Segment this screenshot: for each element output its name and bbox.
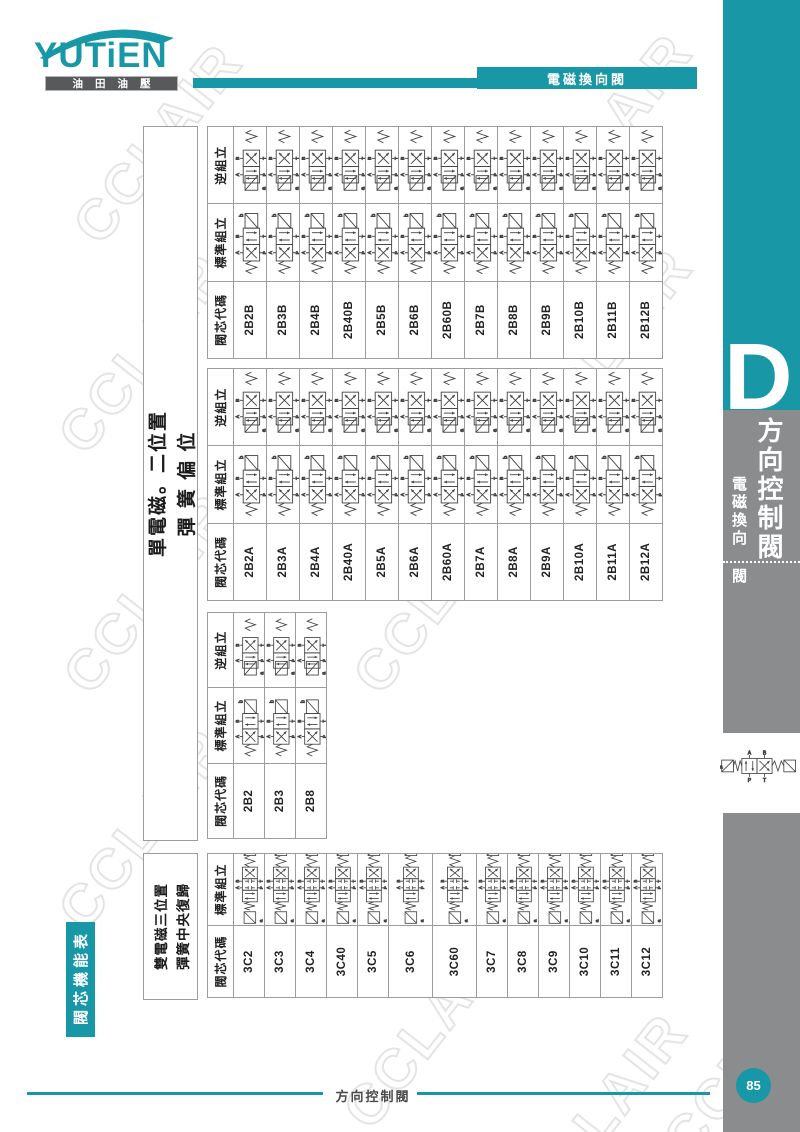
svg-text:B: B [532,157,537,160]
spool-code-cell: 2B5A [366,523,399,600]
svg-text:a: a [360,186,364,190]
svg-text:P: P [294,493,298,496]
valve-symbol-cell: ABPTb [498,446,531,523]
svg-text:B: B [499,476,504,479]
svg-text:P: P [558,174,562,177]
valve-symbol-dbl3: ABPTab [396,854,424,926]
svg-text:A: A [235,250,240,254]
svg-text:A: A [266,659,271,662]
svg-text:b: b [635,456,641,459]
svg-text:A: A [367,250,372,254]
svg-text:P: P [624,174,628,177]
svg-text:B: B [440,880,445,883]
svg-text:a: a [492,186,496,190]
valve-symbol-cell: ABPTab [265,854,296,926]
valve-symbol-rev: ABPTa [301,127,332,204]
svg-text:T: T [492,157,496,160]
spool-code-cell: 2B10B [564,281,597,358]
column-header-standard: 標準組立 [208,446,234,523]
valve-symbol-dbl3: ABPTab [602,854,630,926]
svg-text:B: B [532,476,537,479]
svg-text:A: A [235,415,240,419]
valve-symbol-cell: ABPTb [531,204,564,281]
valve-symbol-dbl3: ABPTab [478,854,506,926]
svg-text:A: A [400,250,405,254]
spool-row-2B12B: 2B12BABPTbABPTa [630,127,663,359]
svg-text:P: P [591,174,595,177]
svg-text:A: A [268,492,273,496]
svg-text:B: B [509,880,514,883]
spool-row-3C7: 3C7ABPTab [477,854,508,998]
spool-row-2B7B: 2B7BABPTbABPTa [465,127,498,359]
svg-text:P: P [261,251,265,254]
svg-text:P: P [261,416,265,419]
valve-symbol-rev: ABPTa [268,127,299,204]
svg-text:A: A [499,250,504,254]
svg-text:T: T [360,157,364,160]
svg-text:B: B [268,234,273,237]
svg-text:T: T [763,778,766,784]
valve-symbol-cell: ABPTab [433,854,477,926]
column-header-standard: 標準組立 [208,854,234,926]
svg-text:P: P [260,659,264,662]
svg-text:A: A [509,886,514,889]
spool-row-2B2B: 2B2BABPTbABPTa [234,127,267,359]
svg-text:b: b [404,214,410,217]
svg-text:B: B [301,234,306,237]
spool-row-3C4: 3C4ABPTab [296,854,327,998]
spool-code-cell: 3C4 [296,926,327,998]
svg-text:B: B [301,157,306,160]
valve-symbol-rev: ABPTa [301,369,332,446]
valve-symbol-rev: ABPTa [433,369,464,446]
valve-symbol-cell: ABPTb [333,446,366,523]
svg-text:T: T [294,157,298,160]
svg-text:T: T [492,234,496,237]
group2-label-line1: 雙電磁三位置 [150,883,170,970]
svg-text:b: b [602,214,608,217]
valve-symbol-rev: ABPTa [532,127,563,204]
svg-text:P: P [360,416,364,419]
svg-text:a: a [426,428,430,432]
valve-symbol-rev: ABPTa [400,127,431,204]
svg-text:T: T [525,476,529,479]
svg-text:A: A [235,173,240,177]
svg-text:P: P [624,251,628,254]
spool-code-cell: 2B2A [234,523,267,600]
svg-text:A: A [466,173,471,177]
svg-text:T: T [294,476,298,479]
svg-text:T: T [426,476,430,479]
svg-text:b: b [338,214,344,217]
svg-text:T: T [393,476,397,479]
valve-symbol-cell: ABPTa [597,369,630,446]
valve-symbol-std: ABPTb [266,688,295,763]
svg-text:B: B [466,476,471,479]
svg-text:T: T [294,234,298,237]
valve-symbol-cell: ABPTb [366,204,399,281]
spool-code-cell: 2B3B [267,281,300,358]
spool-row-2B40B: 2B40BABPTbABPTa [333,127,366,359]
sidebar-dotted-divider [723,561,800,563]
svg-text:B: B [235,399,240,402]
valve-symbol-cell: ABPTa [300,127,333,204]
svg-text:P: P [322,659,326,662]
valve-symbol-cell: ABPTa [498,369,531,446]
valve-symbol-rev: ABPTa [598,369,629,446]
valve-symbol-std: ABPTb [301,446,332,523]
svg-text:A: A [631,173,636,177]
spool-row-2B3B: 2B3BABPTbABPTa [267,127,300,359]
spool-row-2B7A: 2B7AABPTbABPTa [465,369,498,601]
valve-symbol-cell: ABPTab [327,854,358,926]
valve-symbol-cell: ABPTb [234,446,267,523]
footer-rule-right [417,1092,710,1095]
svg-text:B: B [631,399,636,402]
valve-symbol-cell: ABPTb [296,688,327,763]
svg-text:B: B [400,234,405,237]
spool-row-2B8B: 2B8BABPTbABPTa [498,127,531,359]
valve-symbol-std: ABPTb [334,204,365,281]
spool-code-cell: 3C12 [632,926,663,998]
svg-text:T: T [591,157,595,160]
svg-text:a: a [291,919,294,922]
svg-text:A: A [297,886,302,889]
valve-symbol-cell: ABPTb [630,446,663,523]
svg-text:P: P [426,416,430,419]
svg-text:T: T [459,157,463,160]
svg-text:P: P [393,416,397,419]
valve-symbol-rev: ABPTa [499,369,530,446]
group2-label: 雙電磁三位置 彈簧中央復歸 [143,853,198,1000]
spool-row-2B60A: 2B60AABPTbABPTa [432,369,465,601]
valve-symbol-cell: ABPTa [265,613,296,688]
svg-text:T: T [624,157,628,160]
svg-text:P: P [591,416,595,419]
valve-symbol-rev: ABPTa [466,127,497,204]
svg-text:P: P [624,416,628,419]
valve-symbol-cell: ABPTa [267,127,300,204]
spool-code-cell: 2B9A [531,523,564,600]
svg-text:P: P [294,174,298,177]
svg-text:P: P [595,886,599,889]
svg-text:P: P [492,251,496,254]
spool-function-table: 閥芯代碼標準組立逆組立2B2BABPTbABPTa2B3BABPTbABPTa2… [207,126,663,359]
spool-code-cell: 3C7 [477,926,508,998]
svg-text:a: a [294,186,298,190]
spool-row-2B4B: 2B4BABPTbABPTa [300,127,333,359]
svg-text:A: A [433,492,438,496]
spool-row-2B3A: 2B3AABPTbABPTa [267,369,300,601]
svg-text:T: T [525,399,529,402]
svg-text:T: T [261,399,265,402]
spool-row-2B3: 2B3ABPTbABPTa [265,613,296,839]
svg-text:T: T [525,234,529,237]
valve-symbol-std: ABPTb [297,688,326,763]
svg-text:A: A [334,492,339,496]
valve-symbol-cell: ABPTab [632,854,663,926]
svg-text:T: T [426,157,430,160]
spool-function-table: 閥芯代碼標準組立逆組立2B2AABPTbABPTa2B3AABPTbABPTa2… [207,368,663,601]
valve-symbol-std: ABPTb [499,446,530,523]
svg-text:T: T [260,719,264,722]
svg-text:P: P [525,493,529,496]
svg-text:a: a [261,186,265,190]
svg-text:a: a [459,186,463,190]
valve-symbol-cell: ABPTa [597,127,630,204]
svg-text:B: B [235,234,240,237]
svg-text:T: T [502,879,506,882]
header-rule [193,78,477,88]
valve-symbol-rev: ABPTa [334,127,365,204]
spool-code-cell: 2B12A [630,523,663,600]
svg-text:A: A [602,886,607,889]
valve-symbol-cell: ABPTa [630,369,663,446]
valve-symbol-cell: ABPTa [399,369,432,446]
svg-text:P: P [393,174,397,177]
svg-text:A: A [532,250,537,254]
spool-row-2B8A: 2B8AABPTbABPTa [498,369,531,601]
spool-code-cell: 2B2 [234,763,265,838]
svg-text:T: T [465,879,469,882]
svg-text:A: A [440,886,445,889]
svg-text:a: a [426,186,430,190]
svg-text:a: a [260,919,263,922]
valve-symbol-cell: ABPTa [366,127,399,204]
spool-code-cell: 2B6A [399,523,432,600]
spool-function-table: 閥芯代碼標準組立3C2ABPTab3C3ABPTab3C4ABPTab3C40A… [207,853,663,998]
svg-text:a: a [459,428,463,432]
svg-text:P: P [259,886,263,889]
spool-row-2B4A: 2B4AABPTbABPTa [300,369,333,601]
spool-code-cell: 2B9B [531,281,564,358]
spool-code-cell: 2B7B [465,281,498,358]
valve-symbol-cell: ABPTb [564,446,597,523]
svg-text:A: A [532,492,537,496]
svg-text:B: B [433,476,438,479]
svg-text:a: a [322,919,325,922]
svg-text:B: B [400,157,405,160]
valve-symbol-rev: ABPTa [433,127,464,204]
svg-text:P: P [657,886,661,889]
section-title-band: 電磁換向閥 [477,67,697,89]
svg-text:B: B [633,880,638,883]
svg-text:P: P [290,886,294,889]
svg-text:A: A [301,173,306,177]
spool-code-cell: 2B7A [465,523,498,600]
valve-symbol-std: ABPTb [532,446,563,523]
svg-text:A: A [565,250,570,254]
svg-text:A: A [499,415,504,419]
valve-symbol-cell: ABPTb [300,204,333,281]
svg-text:A: A [631,250,636,254]
svg-text:a: a [503,919,506,922]
valve-symbol-rev: ABPTa [297,613,326,688]
footer-label: 方向控制閥 [326,1086,420,1105]
svg-text:B: B [266,644,271,647]
spool-row-3C9: 3C9ABPTab [539,854,570,998]
valve-symbol-dbl2: ABPTab [720,750,800,784]
svg-text:a: a [596,919,599,922]
svg-text:T: T [591,399,595,402]
group1-label: 單電磁。二位置 彈 簧 偏 位 [143,126,198,841]
svg-text:A: A [367,415,372,419]
valve-symbol-cell: ABPTa [630,127,663,204]
valve-symbol-dbl3: ABPTab [571,854,599,926]
spool-row-2B12A: 2B12AABPTbABPTa [630,369,663,601]
spool-code-cell: 2B5B [366,281,399,358]
spool-code-cell: 2B60B [432,281,465,358]
svg-text:T: T [657,157,661,160]
svg-text:T: T [492,399,496,402]
valve-symbol-rev: ABPTa [334,369,365,446]
svg-text:P: P [393,493,397,496]
svg-text:P: P [459,416,463,419]
spool-code-cell: 2B8A [498,523,531,600]
group1-label-line2: 彈 簧 偏 位 [172,431,199,537]
valve-symbol-cell: ABPTa [498,127,531,204]
svg-text:B: B [598,234,603,237]
svg-text:P: P [261,493,265,496]
svg-text:T: T [595,879,599,882]
svg-text:B: B [598,476,603,479]
svg-text:A: A [400,492,405,496]
svg-text:A: A [565,173,570,177]
svg-text:a: a [720,764,723,770]
valve-symbol-dbl3: ABPTab [540,854,568,926]
svg-text:T: T [558,476,562,479]
svg-text:b: b [338,456,344,459]
svg-text:b: b [569,214,575,217]
svg-text:T: T [459,476,463,479]
svg-text:A: A [466,415,471,419]
svg-text:P: P [291,659,295,662]
spool-code-cell: 2B40B [333,281,366,358]
svg-text:P: P [459,251,463,254]
spool-row-3C8: 3C8ABPTab [508,854,539,998]
svg-text:a: a [657,186,661,190]
valve-symbol-std: ABPTb [466,204,497,281]
svg-text:B: B [297,880,302,883]
svg-text:a: a [321,672,325,675]
spool-row-2B10B: 2B10BABPTbABPTa [564,127,597,359]
valve-symbol-std: ABPTb [301,204,332,281]
svg-text:P: P [657,416,661,419]
svg-text:T: T [657,476,661,479]
svg-text:A: A [466,492,471,496]
svg-text:B: B [301,476,306,479]
svg-text:b: b [470,214,476,217]
svg-text:A: A [268,173,273,177]
valve-symbol-rev: ABPTa [266,613,295,688]
valve-symbol-cell: ABPTa [366,369,399,446]
column-header-standard: 標準組立 [208,688,234,763]
page-number-badge: 85 [736,1068,771,1103]
svg-text:A: A [268,415,273,419]
svg-text:T: T [626,879,630,882]
valve-symbol-cell: ABPTb [366,446,399,523]
svg-text:A: A [400,173,405,177]
column-header-code: 閥芯代碼 [208,926,234,998]
spool-row-3C2: 3C2ABPTab [234,854,265,998]
svg-text:P: P [327,493,331,496]
sidebar-sub-title-cont: 閥 [728,568,749,586]
valve-symbol-cell: ABPTab [358,854,389,926]
svg-text:P: P [502,886,506,889]
svg-text:P: P [261,174,265,177]
svg-text:b: b [272,214,278,217]
svg-text:T: T [393,234,397,237]
valve-symbol-cell: ABPTa [234,127,267,204]
spool-table-2b-wrap: 閥芯代碼標準組立逆組立2B2ABPTbABPTa2B3ABPTbABPTa2B8… [207,612,326,839]
svg-text:T: T [591,476,595,479]
svg-text:T: T [321,879,325,882]
valve-symbol-rev: ABPTa [598,127,629,204]
spool-row-3C11: 3C11ABPTab [601,854,632,998]
valve-symbol-cell: ABPTb [531,446,564,523]
valve-symbol-cell: ABPTa [531,369,564,446]
valve-symbol-cell: ABPTb [267,204,300,281]
svg-text:B: B [235,719,240,722]
spool-code-cell: 2B8B [498,281,531,358]
svg-text:P: P [657,174,661,177]
spool-row-2B6B: 2B6BABPTbABPTa [399,127,432,359]
svg-text:b: b [371,214,377,217]
svg-text:P: P [525,416,529,419]
svg-text:A: A [565,415,570,419]
spool-row-2B60B: 2B60BABPTbABPTa [432,127,465,359]
svg-text:T: T [657,234,661,237]
svg-text:a: a [627,919,630,922]
svg-text:P: P [564,886,568,889]
group1-label-wrap: 單電磁。二位置 彈 簧 偏 位 [143,126,196,839]
svg-text:A: A [301,250,306,254]
spool-code-cell: 3C2 [234,926,265,998]
spool-table-2b-a-wrap: 閥芯代碼標準組立逆組立2B2AABPTbABPTa2B3AABPTbABPTa2… [207,368,662,601]
spool-table-3c-wrap: 閥芯代碼標準組立3C2ABPTab3C3ABPTab3C4ABPTab3C40A… [207,853,662,998]
svg-text:P: P [657,493,661,496]
sheet-tag: 閥芯機能表 [66,922,95,1037]
svg-text:T: T [294,399,298,402]
valve-symbol-cell: ABPTa [564,369,597,446]
svg-text:P: P [426,493,430,496]
spool-row-2B2: 2B2ABPTbABPTa [234,613,265,839]
valve-symbol-cell: ABPTab [234,854,265,926]
svg-text:B: B [565,157,570,160]
valve-symbol-dbl3: ABPTab [359,854,387,926]
svg-text:T: T [624,476,628,479]
spool-function-table: 閥芯代碼標準組立逆組立2B2ABPTbABPTa2B3ABPTbABPTa2B8… [207,612,327,839]
spool-row-2B9A: 2B9AABPTbABPTa [531,369,564,601]
svg-text:P: P [748,778,752,784]
svg-text:P: P [459,174,463,177]
svg-text:T: T [564,879,568,882]
valve-symbol-cell: ABPTa [300,369,333,446]
svg-text:A: A [598,415,603,419]
svg-text:b: b [602,456,608,459]
svg-text:a: a [261,428,265,432]
svg-text:P: P [352,886,356,889]
svg-text:B: B [565,234,570,237]
svg-text:T: T [291,644,295,647]
svg-text:B: B [328,880,333,883]
svg-text:A: A [631,492,636,496]
svg-text:T: T [260,644,264,647]
svg-text:a: a [384,919,387,922]
spool-row-3C10: 3C10ABPTab [570,854,601,998]
valve-symbol-cell: ABPTa [531,127,564,204]
valve-symbol-std: ABPTb [235,688,264,763]
